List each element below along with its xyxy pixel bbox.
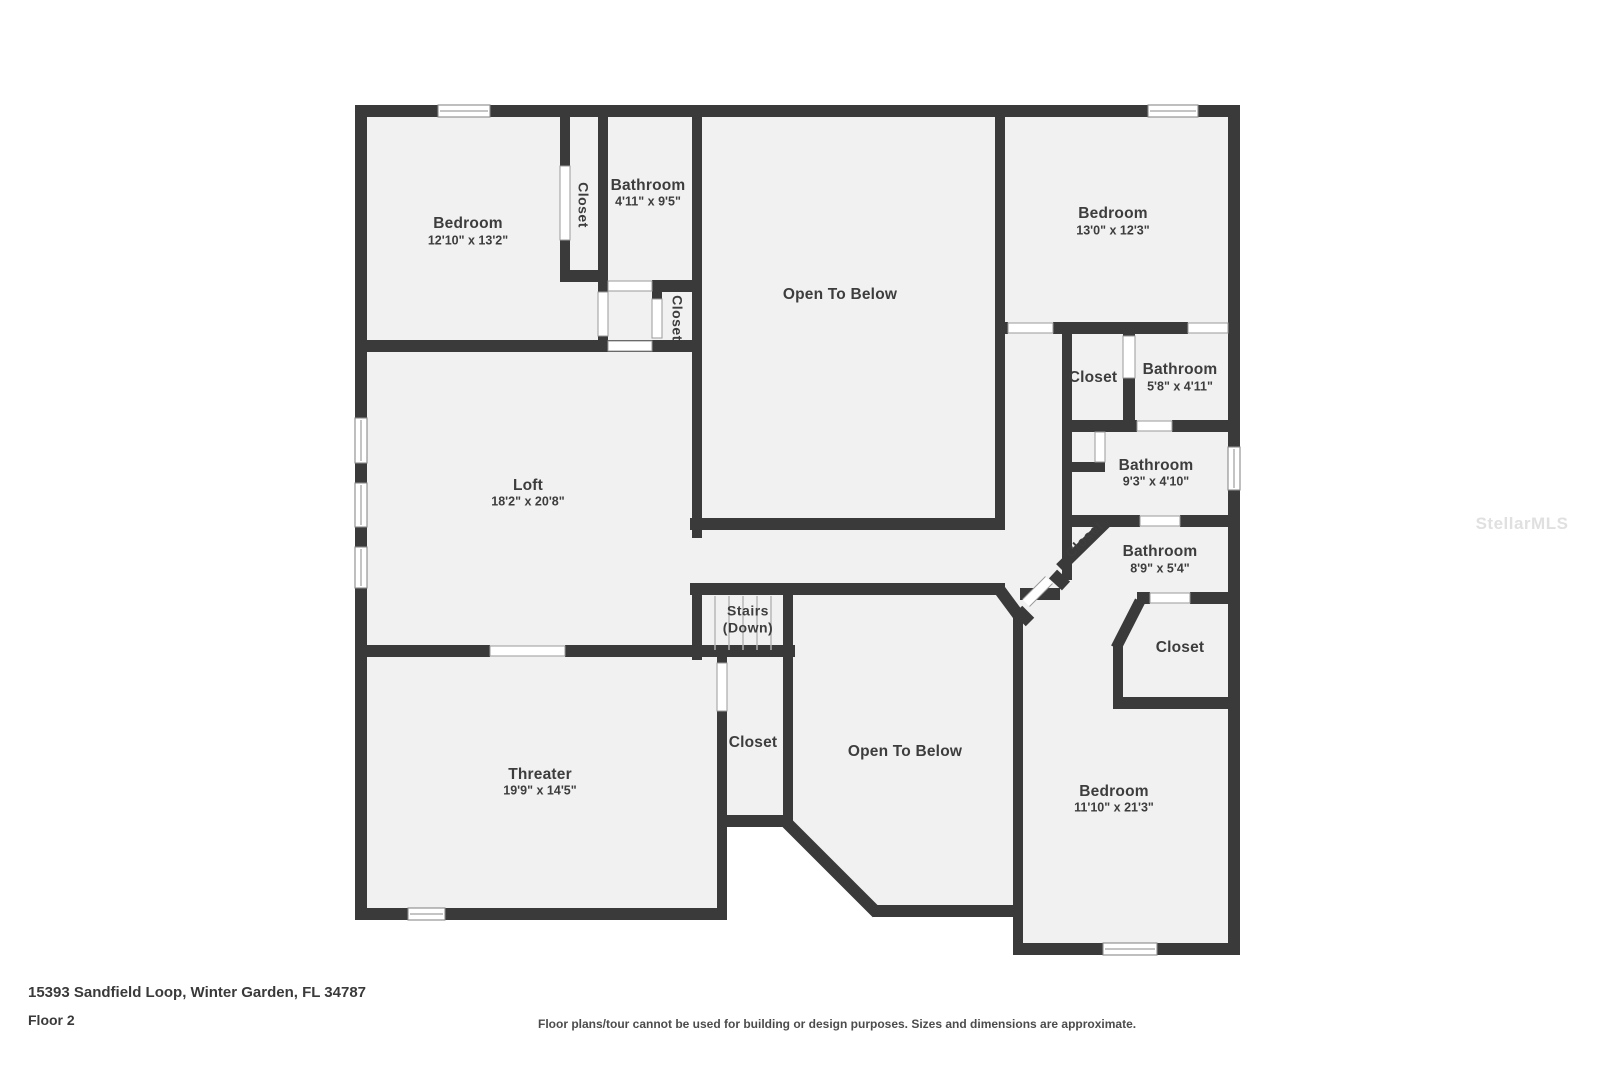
room-label-closet-1: Closet [575, 182, 591, 228]
room-label-theater: Threater [508, 766, 572, 783]
room-dims-bedroom-1: 12'10" x 13'2" [428, 233, 508, 247]
room-label-closet-5: Closet [1156, 639, 1205, 656]
room-dims-bathroom-1: 4'11" x 9'5" [615, 194, 681, 208]
room-label-stairs: Stairs [727, 603, 769, 619]
room-label-loft: Loft [513, 477, 543, 494]
room-label-bathroom-3: Bathroom [1119, 457, 1194, 474]
room-label-bedroom-1: Bedroom [433, 215, 502, 232]
room-label-bathroom-2: Bathroom [1143, 361, 1218, 378]
room-dims-bedroom-2: 13'0" x 12'3" [1076, 223, 1149, 237]
room-label-open-to-below-1: Open To Below [783, 286, 898, 303]
floor-plan-page: Bedroom 12'10" x 13'2" Bathroom 4'11" x … [0, 0, 1600, 1066]
room-dims-loft: 18'2" x 20'8" [491, 494, 564, 508]
floor-label: Floor 2 [28, 1012, 75, 1028]
room-dims-bathroom-3: 9'3" x 4'10" [1123, 474, 1190, 488]
room-label-closet-6: Closet [729, 734, 778, 751]
room-label-open-to-below-2: Open To Below [848, 743, 963, 760]
disclaimer-text: Floor plans/tour cannot be used for buil… [538, 1017, 1136, 1031]
room-label-bathroom-4: Bathroom [1123, 543, 1198, 560]
room-dims-stairs: (Down) [723, 620, 773, 636]
floor-plan-drawing: Bedroom 12'10" x 13'2" Bathroom 4'11" x … [0, 0, 1600, 1066]
room-label-bedroom-3: Bedroom [1079, 783, 1148, 800]
property-address: 15393 Sandfield Loop, Winter Garden, FL … [28, 984, 366, 1001]
watermark-stellar-mls: StellarMLS [1476, 514, 1569, 533]
room-dims-theater: 19'9" x 14'5" [503, 783, 576, 797]
room-dims-bedroom-3: 11'10" x 21'3" [1074, 800, 1154, 814]
room-label-closet-3: Closet [1069, 369, 1118, 386]
room-label-closet-2: Closet [669, 295, 685, 341]
room-label-bedroom-2: Bedroom [1078, 205, 1147, 222]
room-dims-bathroom-2: 5'8" x 4'11" [1147, 379, 1213, 393]
room-dims-bathroom-4: 8'9" x 5'4" [1130, 561, 1190, 575]
room-label-bathroom-1: Bathroom [611, 177, 686, 194]
